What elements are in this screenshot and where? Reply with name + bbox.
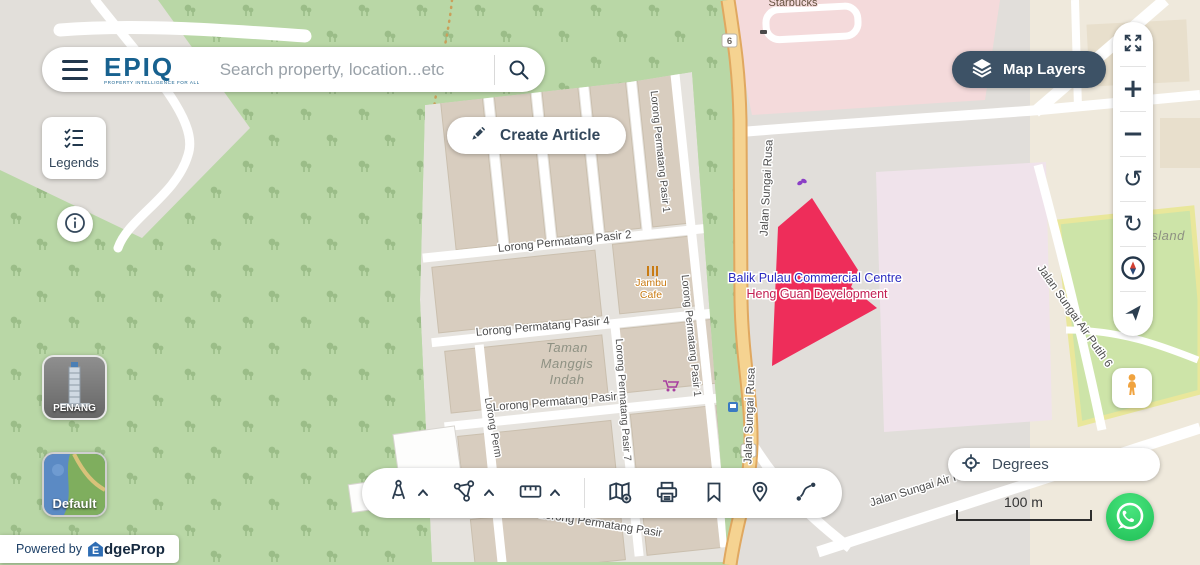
search-input[interactable] [218,59,488,81]
ruler-icon [518,479,543,507]
label-poi-commercial-centre[interactable]: Balik Pulau Commercial Centre [728,271,902,285]
search-icon[interactable] [507,58,531,82]
edgeprop-logo-text: dgeProp [104,541,165,558]
scale-bar [956,510,1092,521]
map-layers-label: Map Layers [1003,61,1086,78]
bus-stop-icon [728,402,738,412]
legends-button[interactable]: Legends [42,117,106,179]
printer-icon [654,479,680,508]
menu-icon[interactable] [62,60,88,80]
minus-icon: − [1122,121,1144,147]
polygon-draw-tool[interactable] [452,479,496,507]
degrees-button[interactable]: Degrees [948,448,1160,481]
fullscreen-button[interactable] [1113,22,1153,66]
info-icon [63,211,87,238]
label-poi-developer[interactable]: Heng Guan Development [746,287,888,301]
bookmark-icon [702,480,726,507]
chevron-up-icon [416,486,430,501]
label-jambu-1: Jambu [635,277,667,289]
drawing-toolbar [362,468,842,518]
map-controls: + − ↺ ↻ [1113,22,1153,336]
divider [494,55,495,85]
compass-icon [1120,255,1146,284]
powered-by-label: Powered by [16,542,82,556]
rotate-cw-icon: ↻ [1123,212,1143,236]
penang-thumb-label: PENANG [44,403,105,414]
layers-icon [972,58,992,82]
location-pin-icon [748,480,772,507]
print-tool[interactable] [654,479,680,508]
draw-compass-icon [386,479,411,507]
svg-text:E: E [92,545,99,557]
expand-icon [1122,32,1144,57]
map-add-icon [607,479,633,508]
label-starbucks: Starbucks [769,0,818,9]
info-button[interactable] [57,206,93,242]
zoom-in-button[interactable]: + [1113,67,1153,111]
house-icon: E [87,541,104,557]
map-add-tool[interactable] [607,479,633,508]
whatsapp-button[interactable] [1106,493,1154,541]
route-shield-top: 6 [722,34,737,47]
map-style-button[interactable]: Default [42,452,107,517]
compass-button[interactable] [1113,247,1153,291]
label-taman-3: Indah [549,372,584,387]
svg-text:6: 6 [727,36,732,47]
degrees-label: Degrees [992,456,1049,473]
search-bar: EPIQ PROPERTY INTELLIGENCE FOR ALL [42,47,545,92]
epiq-logo-tagline: PROPERTY INTELLIGENCE FOR ALL [104,81,200,86]
navigation-arrow-icon [1122,302,1144,327]
bookmark-tool[interactable] [702,480,726,507]
label-taman-1: Taman [546,340,588,355]
label-taman-2: Manggis [541,356,594,371]
plus-icon: + [1122,76,1144,102]
attribution-bar: Powered by E dgeProp [0,535,179,563]
car-icon [760,30,767,34]
epiq-logo-text: EPIQ [104,54,200,80]
checklist-icon [63,126,85,151]
create-article-label: Create Article [500,127,600,145]
route-tool[interactable] [794,480,818,507]
label-jambu-2: Cafe [640,289,662,301]
epiq-logo[interactable]: EPIQ PROPERTY INTELLIGENCE FOR ALL [104,54,200,86]
map-layers-button[interactable]: Map Layers [952,51,1106,88]
ruler-tool[interactable] [518,479,562,507]
scale-label: 100 m [955,494,1092,510]
chevron-up-icon [482,486,496,501]
locate-button[interactable] [1113,292,1153,336]
restaurant-icon [647,266,658,276]
crosshair-icon [960,452,982,478]
create-article-button[interactable]: Create Article [447,117,626,154]
legends-label: Legends [49,155,99,170]
default-thumb-label: Default [44,496,105,511]
rotate-ccw-icon: ↺ [1123,167,1143,191]
polygon-nodes-icon [452,479,477,507]
rotate-ccw-button[interactable]: ↺ [1113,157,1153,201]
chevron-up-icon [548,486,562,501]
location-pin-tool[interactable] [748,480,772,507]
whatsapp-icon [1113,499,1147,536]
route-icon [794,480,818,507]
pegman-button[interactable] [1112,368,1152,408]
pencil-icon [469,124,488,148]
zoom-out-button[interactable]: − [1113,112,1153,156]
penang-map-button[interactable]: PENANG [42,355,107,420]
pegman-icon [1120,374,1144,403]
draw-compass-tool[interactable] [386,479,430,507]
divider [584,478,585,508]
edgeprop-logo[interactable]: E dgeProp [87,541,165,558]
rotate-cw-button[interactable]: ↻ [1113,202,1153,246]
